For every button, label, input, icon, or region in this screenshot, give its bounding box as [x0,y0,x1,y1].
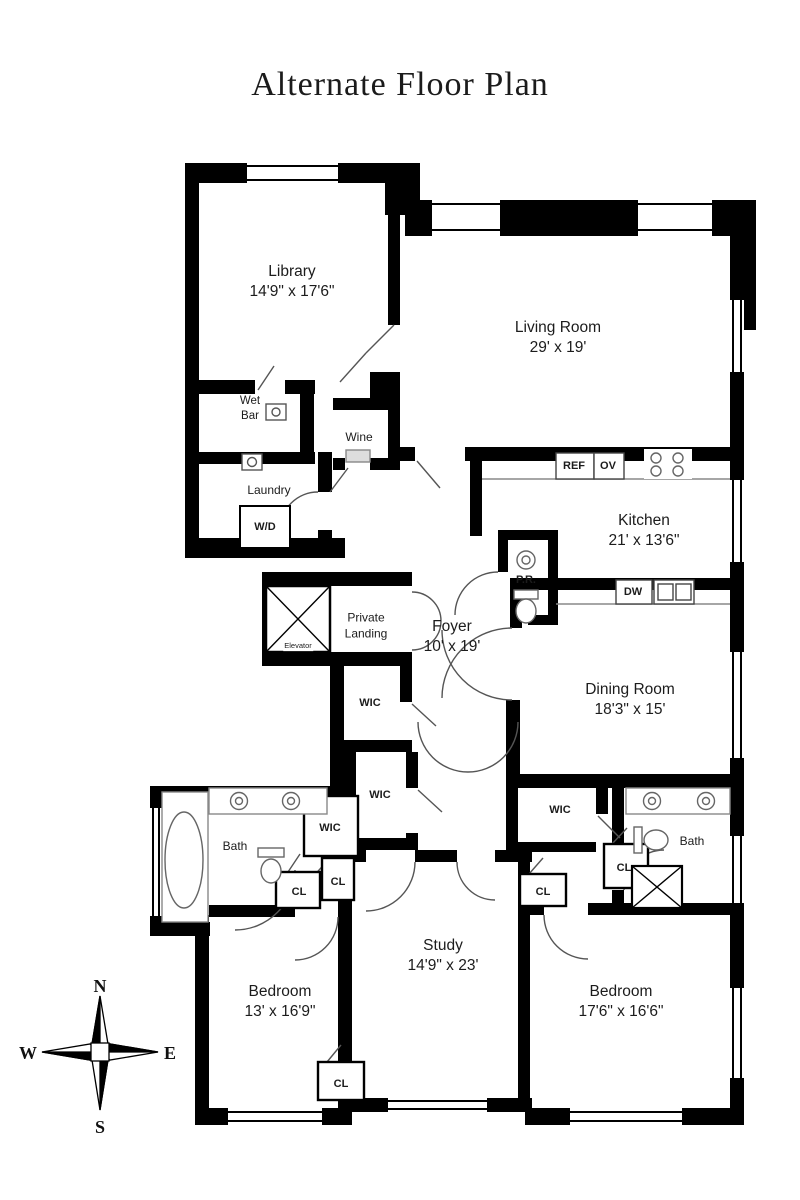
label-cl-right-1: CL [617,861,632,875]
compass-west-label: W [19,1043,37,1063]
wine-cooler [346,450,370,462]
label-wic-upper: WIC [359,696,380,710]
room-name: Library [249,262,334,282]
room-dims: 10' x 19' [424,637,481,657]
room-dims: 14'9" x 23' [408,956,479,976]
room-name: Dining Room [585,680,675,700]
compass-south-label: S [95,1117,105,1137]
room-name: Foyer [424,617,481,637]
room-name: Living Room [515,318,601,338]
toilet-icon [514,590,538,623]
label-wic-middle: WIC [369,788,390,802]
room-dims: 21' x 13'6" [609,531,680,551]
room-dims: 18'3" x 15' [585,700,675,720]
label-cl-left-2: CL [331,875,346,889]
shower-icon [632,866,682,908]
room-label-bedroom-right: Bedroom 17'6" x 16'6" [578,982,663,1022]
room-label-kitchen: Kitchen 21' x 13'6" [609,511,680,551]
room-name: Kitchen [609,511,680,531]
room-dims: 14'9" x 17'6" [249,282,334,302]
label-oven: OV [600,459,616,473]
room-label-foyer: Foyer 10' x 19' [424,617,481,657]
room-name: Study [408,936,479,956]
sink-icon [698,793,715,810]
label-wine: Wine [345,430,372,446]
room-name: Bedroom [245,982,316,1002]
bathtub-icon [162,792,208,922]
room-dims: 17'6" x 16'6" [578,1002,663,1022]
label-elevator: Elevator [283,641,313,651]
label-washer-dryer: W/D [254,520,275,534]
label-private-landing: Private Landing [335,610,397,641]
label-bath-left: Bath [223,839,248,855]
label-wic-right: WIC [549,803,570,817]
room-label-library: Library 14'9" x 17'6" [249,262,334,302]
sink-icon [644,793,661,810]
label-wet-bar: Wet Bar [232,394,268,424]
label-cl-left-1: CL [292,885,307,899]
room-label-dining-room: Dining Room 18'3" x 15' [585,680,675,720]
room-label-study: Study 14'9" x 23' [408,936,479,976]
room-dims: 13' x 16'9" [245,1002,316,1022]
label-powder-room: P.R. [516,573,536,587]
room-name: Bedroom [578,982,663,1002]
compass-east-label: E [164,1043,176,1063]
label-cl-bottom: CL [334,1077,349,1091]
room-label-bedroom-left: Bedroom 13' x 16'9" [245,982,316,1022]
label-bath-right: Bath [680,834,705,850]
sink-icon [283,793,300,810]
stove-icon [644,449,692,479]
room-label-living-room: Living Room 29' x 19' [515,318,601,358]
label-wic-left: WIC [319,821,340,835]
label-laundry: Laundry [247,483,290,499]
floor-plan: N S W E Alternate Floor Plan Library 14'… [0,0,800,1200]
label-dishwasher: DW [624,585,642,599]
kitchen-sink-icon [654,580,694,604]
floor-plan-drawing: N S W E [0,0,800,1200]
laundry-sink-icon [242,454,262,470]
room-dims: 29' x 19' [515,338,601,358]
wetbar-sink-icon [266,404,286,420]
label-refrigerator: REF [563,459,585,473]
label-cl-right-2: CL [536,885,551,899]
page-title: Alternate Floor Plan [251,66,549,104]
right-bath-fixtures [626,788,730,908]
toilet-icon [634,827,668,853]
compass-rose: N S W E [19,976,176,1137]
vanity-counter [209,788,327,814]
compass-north-label: N [94,976,107,996]
sink-icon [231,793,248,810]
